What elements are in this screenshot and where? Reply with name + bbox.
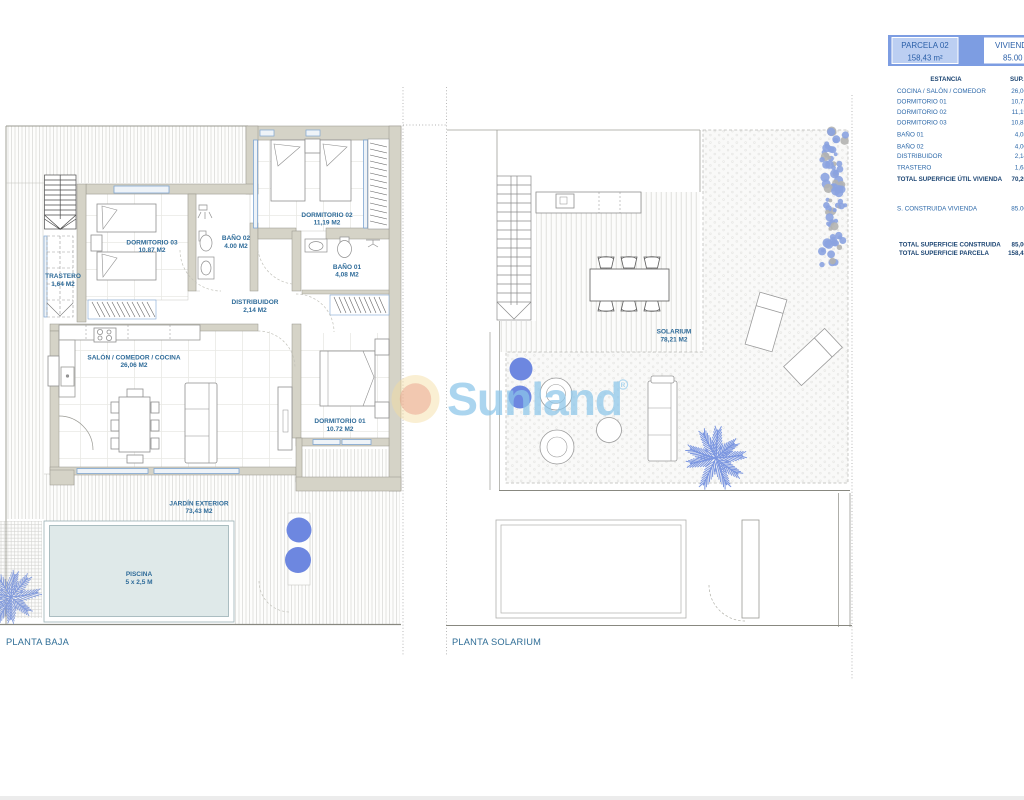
svg-text:R: R xyxy=(621,382,626,389)
svg-text:PISCINA: PISCINA xyxy=(126,571,153,578)
svg-text:11,19: 11,19 xyxy=(1012,109,1024,116)
svg-text:11,19 M2: 11,19 M2 xyxy=(314,220,341,227)
svg-text:26,06: 26,06 xyxy=(1011,88,1024,95)
svg-text:4,00: 4,00 xyxy=(1015,144,1024,151)
svg-text:ESTANCIA: ESTANCIA xyxy=(930,76,962,83)
svg-text:73,43 M2: 73,43 M2 xyxy=(185,508,212,515)
svg-text:85.00: 85.00 xyxy=(1011,206,1024,213)
svg-text:BAÑO 01: BAÑO 01 xyxy=(897,130,924,139)
svg-text:4,08 M2: 4,08 M2 xyxy=(335,272,359,279)
svg-text:DORMITORIO 03: DORMITORIO 03 xyxy=(897,120,947,127)
svg-text:DORMITORIO 01: DORMITORIO 01 xyxy=(314,418,366,425)
svg-text:DISTRIBUIDOR: DISTRIBUIDOR xyxy=(232,299,279,306)
svg-text:78,21 M2: 78,21 M2 xyxy=(660,337,687,344)
svg-text:SUP. ÚTIL: SUP. ÚTIL xyxy=(1010,76,1024,83)
svg-text:4.00 M2: 4.00 M2 xyxy=(224,243,248,250)
svg-text:JARDÍN EXTERIOR: JARDÍN EXTERIOR xyxy=(169,499,229,508)
svg-text:S. CONSTRUIDA VIVIENDA: S. CONSTRUIDA VIVIENDA xyxy=(897,206,978,213)
svg-text:DISTRIBUIDOR: DISTRIBUIDOR xyxy=(897,153,943,160)
svg-text:PARCELA 02: PARCELA 02 xyxy=(901,41,949,50)
svg-text:Sunland: Sunland xyxy=(447,373,622,425)
svg-text:SOLARIUM: SOLARIUM xyxy=(657,329,692,336)
svg-text:2,14: 2,14 xyxy=(1015,153,1024,160)
svg-text:BAÑO 01: BAÑO 01 xyxy=(333,262,362,271)
svg-text:26,06 M2: 26,06 M2 xyxy=(120,362,147,369)
svg-text:COCINA / SALÓN / COMEDOR: COCINA / SALÓN / COMEDOR xyxy=(897,86,986,95)
svg-text:1,64 M2: 1,64 M2 xyxy=(51,281,75,288)
svg-text:DORMITORIO 01: DORMITORIO 01 xyxy=(897,99,947,106)
svg-text:TOTAL SUPERFICIE ÚTIL VIVIENDA: TOTAL SUPERFICIE ÚTIL VIVIENDA xyxy=(897,176,1003,183)
svg-text:5 x 2,5 M: 5 x 2,5 M xyxy=(125,579,152,586)
svg-text:BAÑO 02: BAÑO 02 xyxy=(897,142,924,151)
svg-text:DORMITORIO 03: DORMITORIO 03 xyxy=(126,240,178,247)
svg-text:TOTAL SUPERFICIE CONSTRUIDA: TOTAL SUPERFICIE CONSTRUIDA xyxy=(899,242,1001,249)
svg-text:70,20: 70,20 xyxy=(1012,176,1024,183)
svg-text:10,87: 10,87 xyxy=(1011,120,1024,127)
svg-text:PLANTA BAJA: PLANTA BAJA xyxy=(6,637,70,647)
svg-text:158,43: 158,43 xyxy=(1008,250,1024,257)
svg-text:SALÓN / COMEDOR / COCINA: SALÓN / COMEDOR / COCINA xyxy=(87,353,180,362)
svg-text:85,00: 85,00 xyxy=(1012,242,1024,249)
svg-text:DORMITORIO 02: DORMITORIO 02 xyxy=(301,212,353,219)
svg-text:BAÑO 02: BAÑO 02 xyxy=(222,233,251,242)
svg-text:TRASTERO: TRASTERO xyxy=(45,273,81,280)
svg-text:TRASTERO: TRASTERO xyxy=(897,165,931,172)
svg-text:10.87 M2: 10.87 M2 xyxy=(138,247,165,254)
svg-text:2,14 M2: 2,14 M2 xyxy=(243,307,267,314)
svg-text:10.72 M2: 10.72 M2 xyxy=(326,426,353,433)
svg-text:4,08: 4,08 xyxy=(1015,132,1024,139)
svg-text:VIVIENDA: VIVIENDA xyxy=(995,41,1024,50)
svg-text:DORMITORIO 02: DORMITORIO 02 xyxy=(897,109,947,116)
svg-text:85.00 m²: 85.00 m² xyxy=(1003,54,1024,63)
svg-text:TOTAL SUPERFICIE PARCELA: TOTAL SUPERFICIE PARCELA xyxy=(899,250,989,257)
svg-text:1,64: 1,64 xyxy=(1015,165,1024,172)
svg-text:PLANTA SOLARIUM: PLANTA SOLARIUM xyxy=(452,637,541,647)
svg-text:10,72: 10,72 xyxy=(1011,99,1024,106)
svg-text:158,43 m²: 158,43 m² xyxy=(907,54,943,63)
